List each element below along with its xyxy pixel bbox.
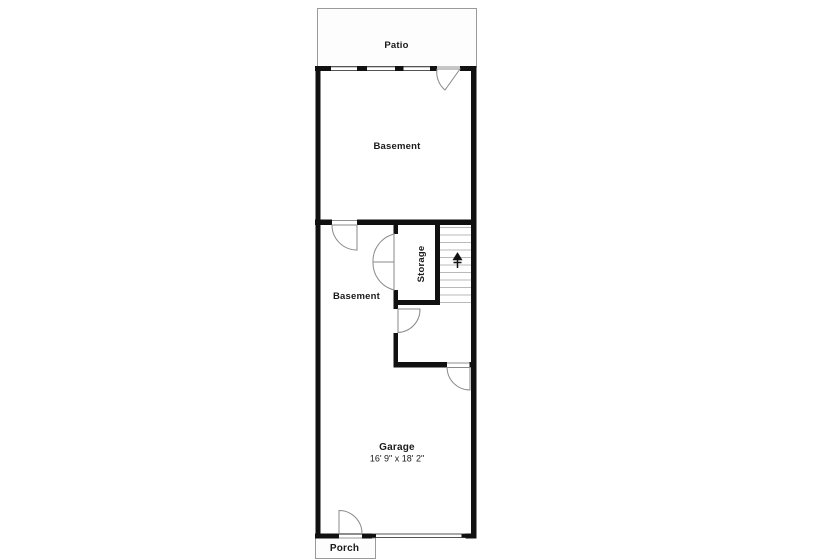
wall-landing-south [470,362,477,368]
porch-label: Porch [330,543,359,554]
wall-top-segment [395,66,404,71]
patio-area [318,9,477,68]
porch-door-arc [339,511,362,534]
storage-bifold-upper-arc [373,234,394,262]
wall-top-segment [315,66,331,71]
wall-top-segment [430,66,437,71]
storage-bifold-lower-arc [373,262,394,290]
stairs-up-arrow-icon [454,254,462,269]
wall-storage-south [394,300,441,305]
patio-door-arc [437,69,460,90]
wall-right [471,66,477,539]
wall-left [316,66,321,539]
wall-mid-right [357,220,476,226]
floorplan: Patio Basement Basement Storage Garage 1… [0,0,820,560]
storage-label: Storage [416,246,427,283]
wall-top-segment [460,66,477,71]
garage-label: Garage [379,442,415,453]
wall-bottom-segment [315,534,339,539]
basement-door-arc [332,225,357,250]
garage-dimensions: 16' 9" x 18' 2" [370,454,424,464]
patio-label: Patio [384,40,408,51]
staircase [440,228,471,303]
basement-lower-label: Basement [333,291,381,302]
wall-mid-left [315,220,332,226]
wall-storage-west [394,290,399,309]
landing-door-arc [398,309,420,333]
wall-stairs-west [435,225,440,305]
wall-storage-west [394,225,399,234]
wall-top-segment [357,66,367,71]
garage-entry-door-arc [447,368,470,391]
wall-landing-south [394,362,448,368]
garage-door [372,534,466,538]
wall-bottom-segment [466,534,477,539]
wall-bottom-segment [362,534,372,539]
wall-storage-west [394,333,399,364]
basement-upper-label: Basement [373,141,421,152]
floorplan-canvas: Patio Basement Basement Storage Garage 1… [0,0,820,560]
